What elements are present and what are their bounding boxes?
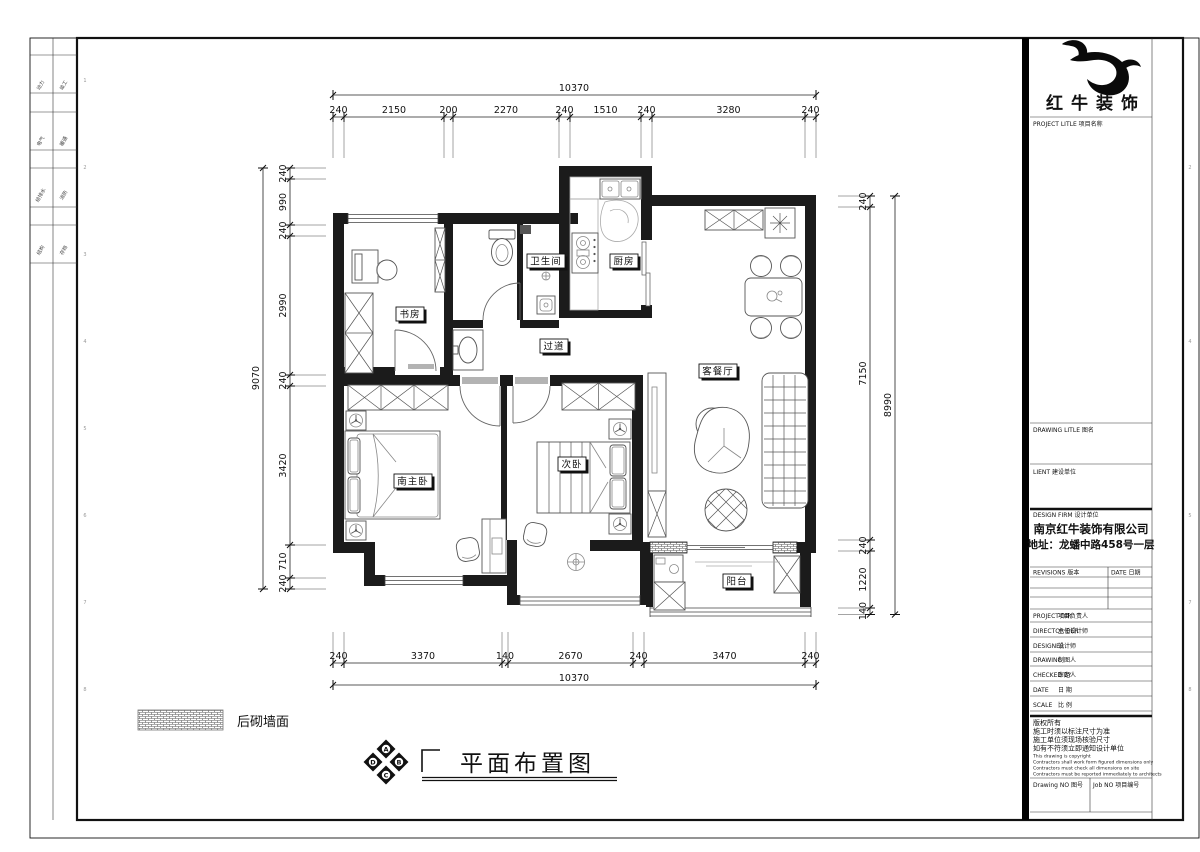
svg-text:4: 4 bbox=[83, 339, 86, 345]
titleblock-divider-bar bbox=[1022, 38, 1029, 820]
svg-text:1: 1 bbox=[83, 78, 86, 84]
svg-text:240: 240 bbox=[801, 651, 819, 662]
svg-text:Contractors shall work form fi: Contractors shall work form figured dime… bbox=[1033, 760, 1154, 766]
svg-text:客餐厅: 客餐厅 bbox=[702, 366, 734, 378]
svg-text:10370: 10370 bbox=[559, 83, 589, 94]
svg-text:比 例: 比 例 bbox=[1058, 701, 1072, 709]
svg-text:DATE: DATE bbox=[1033, 687, 1049, 694]
svg-text:240: 240 bbox=[629, 651, 647, 662]
svg-text:9070: 9070 bbox=[251, 366, 262, 390]
svg-text:2150: 2150 bbox=[382, 105, 406, 116]
svg-text:Contractors must be reported i: Contractors must be reported immediately… bbox=[1033, 772, 1162, 778]
svg-text:C: C bbox=[384, 771, 389, 779]
svg-text:240: 240 bbox=[278, 371, 289, 389]
revisions-label: REVISIONS 版本 bbox=[1033, 569, 1079, 577]
project-title-label: PROJECT LITLE 项目名称 bbox=[1033, 120, 1103, 128]
svg-text:240: 240 bbox=[801, 105, 819, 116]
room-label-second: 次卧 bbox=[558, 457, 589, 474]
svg-text:2670: 2670 bbox=[558, 651, 582, 662]
svg-text:240: 240 bbox=[555, 105, 573, 116]
svg-text:日 期: 日 期 bbox=[1058, 686, 1072, 694]
svg-text:Contractors must check all dim: Contractors must check all dimensions on… bbox=[1033, 766, 1139, 772]
svg-text:8: 8 bbox=[1188, 687, 1191, 693]
room-label-master: 南主卧 bbox=[394, 474, 435, 491]
room-label-kitchen: 厨房 bbox=[610, 254, 641, 271]
svg-text:1220: 1220 bbox=[858, 567, 869, 591]
svg-text:240: 240 bbox=[637, 105, 655, 116]
svg-text:240: 240 bbox=[278, 574, 289, 592]
svg-text:阳台: 阳台 bbox=[726, 576, 747, 588]
svg-text:施工单位须现场核验尺寸: 施工单位须现场核验尺寸 bbox=[1033, 735, 1110, 744]
svg-text:3420: 3420 bbox=[278, 453, 289, 477]
brand-name: 红牛装饰 bbox=[1046, 93, 1146, 114]
drawing-sheet: 动力 竣工 电气 暖通 给排水 消防 结构 存档 1 2 3 4 5 6 7 8… bbox=[0, 0, 1200, 852]
svg-text:B: B bbox=[397, 758, 402, 766]
svg-text:制图人: 制图人 bbox=[1058, 656, 1076, 664]
svg-text:240: 240 bbox=[278, 164, 289, 182]
svg-text:施工时须以标注尺寸为准: 施工时须以标注尺寸为准 bbox=[1033, 727, 1110, 736]
svg-text:3: 3 bbox=[83, 252, 86, 258]
room-label-bath: 卫生间 bbox=[527, 254, 568, 271]
svg-text:设计师: 设计师 bbox=[1058, 642, 1076, 650]
svg-text:3370: 3370 bbox=[411, 651, 435, 662]
drawing-title: 平面布置图 bbox=[460, 751, 595, 777]
legend-swatch-new-wall bbox=[138, 710, 223, 730]
svg-text:卫生间: 卫生间 bbox=[530, 256, 562, 268]
svg-text:如有不符须立即通知设计单位: 如有不符须立即通知设计单位 bbox=[1033, 744, 1124, 753]
new-built-wall bbox=[773, 542, 797, 553]
date-col-label: DATE 日期 bbox=[1111, 569, 1141, 577]
design-firm-label: DESIGN FIRM 设计单位 bbox=[1033, 511, 1099, 519]
svg-text:140: 140 bbox=[496, 651, 514, 662]
svg-text:200: 200 bbox=[439, 105, 457, 116]
svg-text:4: 4 bbox=[1188, 339, 1191, 345]
svg-text:710: 710 bbox=[278, 552, 289, 570]
svg-text:3470: 3470 bbox=[712, 651, 736, 662]
svg-text:5: 5 bbox=[1188, 513, 1191, 519]
svg-text:240: 240 bbox=[278, 221, 289, 239]
svg-text:2990: 2990 bbox=[278, 293, 289, 317]
svg-text:A: A bbox=[383, 745, 388, 753]
company-name: 南京红牛装饰有限公司 bbox=[1034, 522, 1149, 536]
svg-text:2: 2 bbox=[1188, 165, 1191, 171]
job-no-label: Job NO 项目编号 bbox=[1092, 781, 1139, 789]
drawing-title-label: DRAWING LITLE 图名 bbox=[1033, 426, 1094, 434]
svg-text:240: 240 bbox=[858, 536, 869, 554]
svg-text:7: 7 bbox=[83, 600, 86, 606]
svg-text:10370: 10370 bbox=[559, 673, 589, 684]
svg-text:8990: 8990 bbox=[883, 393, 894, 417]
room-label-study: 书房 bbox=[396, 307, 427, 324]
svg-text:厨房: 厨房 bbox=[613, 256, 634, 268]
svg-text:SCALE: SCALE bbox=[1033, 702, 1052, 709]
svg-text:版权所有: 版权所有 bbox=[1033, 718, 1061, 727]
svg-text:次卧: 次卧 bbox=[561, 459, 582, 471]
legend-label: 后砌墙面 bbox=[237, 715, 289, 730]
svg-text:990: 990 bbox=[278, 193, 289, 211]
svg-text:项目负责人: 项目负责人 bbox=[1058, 612, 1088, 620]
drawing-no-label: Drawing NO 图号 bbox=[1033, 782, 1083, 789]
svg-text:2: 2 bbox=[83, 165, 86, 171]
room-label-hall: 过道 bbox=[540, 339, 571, 356]
svg-text:This drawing is copyright: This drawing is copyright bbox=[1032, 754, 1091, 760]
room-label-living: 客餐厅 bbox=[699, 364, 740, 381]
svg-text:3280: 3280 bbox=[716, 105, 740, 116]
svg-text:D: D bbox=[370, 758, 376, 766]
svg-text:7150: 7150 bbox=[858, 361, 869, 385]
svg-text:南主卧: 南主卧 bbox=[397, 476, 429, 488]
svg-text:7: 7 bbox=[1188, 600, 1191, 606]
svg-text:240: 240 bbox=[858, 192, 869, 210]
svg-text:5: 5 bbox=[83, 426, 86, 432]
room-label-balcony: 阳台 bbox=[723, 574, 754, 591]
svg-text:1510: 1510 bbox=[593, 105, 617, 116]
client-label: LIENT 建设单位 bbox=[1033, 468, 1076, 476]
svg-text:240: 240 bbox=[329, 651, 347, 662]
svg-text:240: 240 bbox=[329, 105, 347, 116]
svg-text:过道: 过道 bbox=[543, 341, 564, 353]
company-address: 地址：龙蟠中路458号一层 bbox=[1028, 538, 1155, 551]
svg-text:2270: 2270 bbox=[494, 105, 518, 116]
svg-text:书房: 书房 bbox=[399, 309, 420, 321]
new-built-wall bbox=[650, 542, 687, 553]
svg-text:8: 8 bbox=[83, 687, 86, 693]
svg-text:6: 6 bbox=[83, 513, 86, 519]
svg-text:审定人: 审定人 bbox=[1058, 671, 1076, 679]
svg-text:140: 140 bbox=[858, 602, 869, 620]
svg-text:主任设计师: 主任设计师 bbox=[1058, 627, 1088, 635]
